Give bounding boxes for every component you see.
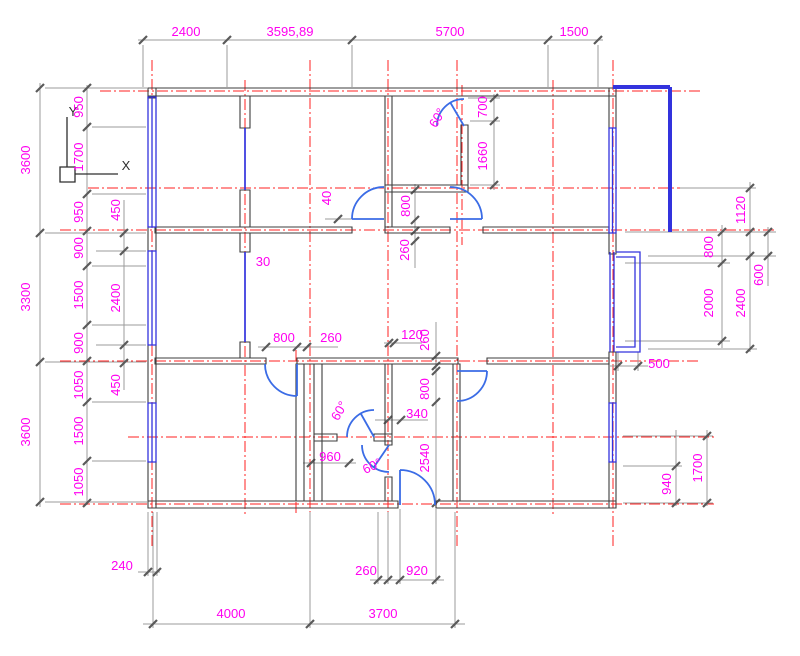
door-room-bottom-right: [457, 371, 487, 401]
door-entrance: [400, 470, 435, 505]
dim-left-inner2-1: 450: [108, 199, 123, 221]
door-wc-upper: [347, 410, 374, 437]
dim-int-40: 40: [319, 191, 334, 205]
dim-left-inner-5: 1500: [71, 281, 86, 310]
dim-left-inner-9: 1050: [71, 468, 86, 497]
dim-top-3: 5700: [436, 24, 465, 39]
window-left-middle: [148, 251, 156, 345]
dim-int-1660: 1660: [475, 142, 490, 171]
door-hall-left: [352, 187, 384, 219]
dim-top-4: 1500: [560, 24, 589, 39]
dim-left-inner-2: 1700: [71, 143, 86, 172]
dim-left-inner-4: 900: [71, 237, 86, 259]
dim-left-inner-8: 1500: [71, 417, 86, 446]
dim-right-2400: 2400: [733, 289, 748, 318]
doors: [265, 99, 487, 505]
dim-top-1: 2400: [172, 24, 201, 39]
interior-walls: [155, 96, 609, 501]
dim-left-inner-6: 900: [71, 332, 86, 354]
centerlines-vertical: [152, 60, 613, 548]
dim-int-dw800: 800: [417, 378, 432, 400]
dim-left-inner2-2: 2400: [108, 284, 123, 313]
dim-bottom-920: 920: [406, 563, 428, 578]
dim-right-1120: 1120: [733, 196, 748, 224]
dim-left-outer-3: 3600: [18, 418, 33, 447]
dim-left-outer-1: 3600: [18, 146, 33, 175]
cad-canvas: Y X 2400 3595,89 5700 1500 3600 3300 360…: [0, 0, 800, 656]
dim-int-h800: 800: [273, 330, 295, 345]
dim-left-outer-2: 3300: [18, 283, 33, 312]
ucs-x-label: X: [122, 158, 131, 173]
dim-left-inner2-3: 450: [108, 374, 123, 396]
dim-bottom-260: 260: [355, 563, 377, 578]
dim-right-600: 600: [751, 264, 766, 286]
dim-bottom-240: 240: [111, 558, 133, 573]
balcony: [613, 87, 670, 232]
dim-bottom-3700: 3700: [369, 606, 398, 621]
window-right-top: [609, 128, 616, 233]
dim-angle-1: 60°: [426, 105, 449, 130]
window-left-bottom: [148, 403, 156, 462]
dim-right-940: 940: [659, 473, 674, 495]
dim-int-v260: 260: [397, 239, 412, 261]
dim-left-inner-7: 1050: [71, 371, 86, 400]
door-room-bottom-left: [265, 364, 297, 396]
walls: [148, 88, 616, 508]
dim-int-w260: 260: [417, 329, 432, 351]
balcony-rail: [613, 87, 670, 232]
dim-bottom-4000: 4000: [217, 606, 246, 621]
floor-plan-svg: Y X 2400 3595,89 5700 1500 3600 3300 360…: [0, 0, 800, 656]
dim-int-700: 700: [475, 96, 490, 118]
dim-int-h260: 260: [320, 330, 342, 345]
dim-int-v800: 800: [398, 195, 413, 217]
dim-left-inner-1: 950: [71, 96, 86, 118]
dim-int-2540: 2540: [417, 444, 432, 473]
bay-window: [610, 252, 640, 352]
dim-angle-2: 60°: [328, 398, 351, 423]
dim-int-340: 340: [406, 406, 428, 421]
dim-left-inner-3: 950: [71, 201, 86, 223]
exterior-walls: [148, 88, 616, 508]
windows: [148, 97, 640, 462]
dim-right-500: 500: [648, 356, 670, 371]
dim-int-960: 960: [319, 449, 341, 464]
dim-int-30: 30: [256, 254, 270, 269]
dim-top-2: 3595,89: [267, 24, 314, 39]
dim-right-2000: 2000: [701, 289, 716, 318]
window-left-top: [148, 97, 156, 227]
dim-right-800: 800: [701, 236, 716, 258]
dim-right-1700: 1700: [690, 454, 705, 483]
window-right-bottom: [609, 403, 616, 462]
